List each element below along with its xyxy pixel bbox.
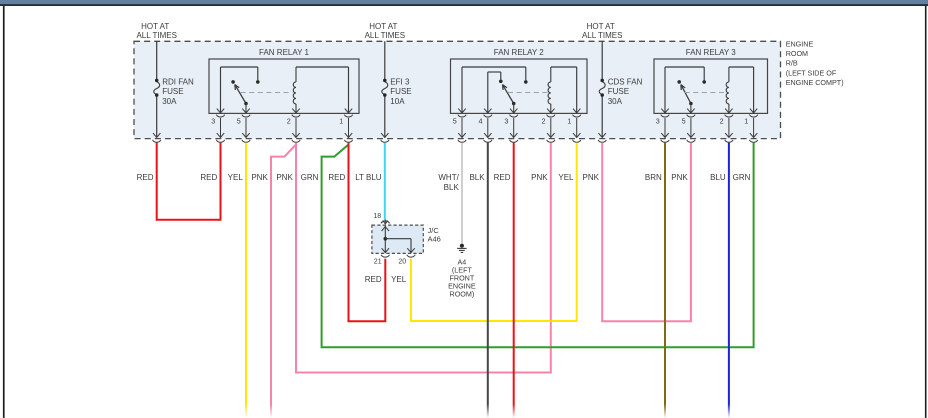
svg-text:5: 5	[453, 117, 457, 126]
svg-text:ENGINE: ENGINE	[786, 40, 814, 49]
svg-text:BRN: BRN	[645, 173, 662, 182]
svg-text:RED: RED	[137, 173, 154, 182]
svg-text:HOT AT: HOT AT	[141, 22, 169, 31]
svg-text:J/C: J/C	[428, 226, 440, 235]
svg-text:BLK: BLK	[444, 183, 460, 192]
svg-text:YEL: YEL	[558, 173, 574, 182]
svg-text:FUSE: FUSE	[162, 87, 183, 96]
svg-text:2: 2	[287, 117, 291, 126]
svg-text:RED: RED	[494, 173, 511, 182]
svg-text:HOT AT: HOT AT	[587, 22, 615, 31]
svg-text:HOT AT: HOT AT	[369, 22, 397, 31]
svg-text:CDS FAN: CDS FAN	[608, 78, 643, 87]
svg-text:GRN: GRN	[733, 173, 751, 182]
svg-text:ROOM): ROOM)	[450, 290, 475, 299]
svg-text:FUSE: FUSE	[608, 87, 629, 96]
svg-text:ALL TIMES: ALL TIMES	[365, 31, 405, 40]
svg-text:FAN RELAY 1: FAN RELAY 1	[259, 48, 310, 57]
svg-text:18: 18	[373, 213, 381, 220]
svg-text:RED: RED	[365, 275, 382, 284]
svg-text:30A: 30A	[608, 97, 623, 106]
svg-text:1: 1	[567, 117, 571, 126]
svg-text:A46: A46	[428, 235, 441, 244]
svg-text:WHT/: WHT/	[438, 173, 459, 182]
svg-text:ENGINE COMPT): ENGINE COMPT)	[786, 78, 844, 87]
svg-text:(LEFT SIDE OF: (LEFT SIDE OF	[786, 68, 837, 77]
svg-text:YEL: YEL	[228, 173, 244, 182]
svg-text:2: 2	[720, 117, 724, 126]
svg-text:FAN RELAY 2: FAN RELAY 2	[494, 48, 545, 57]
svg-text:BLU: BLU	[710, 173, 726, 182]
svg-text:GRN: GRN	[301, 173, 319, 182]
svg-text:PNK: PNK	[251, 173, 268, 182]
svg-text:21: 21	[374, 259, 382, 266]
svg-text:10A: 10A	[390, 97, 405, 106]
svg-text:5: 5	[682, 117, 686, 126]
svg-text:2: 2	[542, 117, 546, 126]
svg-text:PNK: PNK	[583, 173, 600, 182]
svg-text:30A: 30A	[162, 97, 177, 106]
svg-text:ALL TIMES: ALL TIMES	[582, 31, 622, 40]
svg-text:3: 3	[211, 117, 215, 126]
svg-text:YEL: YEL	[391, 275, 407, 284]
svg-text:20: 20	[398, 259, 406, 266]
svg-text:LT BLU: LT BLU	[355, 173, 382, 182]
svg-text:4: 4	[479, 117, 483, 126]
svg-text:PNK: PNK	[531, 173, 548, 182]
svg-text:PNK: PNK	[276, 173, 293, 182]
svg-text:FUSE: FUSE	[390, 87, 411, 96]
svg-text:EFI 3: EFI 3	[390, 78, 410, 87]
svg-text:1: 1	[339, 117, 343, 126]
svg-text:ALL TIMES: ALL TIMES	[136, 31, 176, 40]
svg-text:3: 3	[504, 117, 508, 126]
svg-text:RDI FAN: RDI FAN	[162, 78, 194, 87]
svg-text:5: 5	[237, 117, 241, 126]
svg-text:BLK: BLK	[469, 173, 485, 182]
svg-text:RED: RED	[200, 173, 217, 182]
svg-text:R/B: R/B	[786, 59, 798, 68]
svg-text:1: 1	[744, 117, 748, 126]
svg-text:FAN RELAY 3: FAN RELAY 3	[686, 48, 737, 57]
svg-text:3: 3	[656, 117, 660, 126]
svg-text:PNK: PNK	[671, 173, 688, 182]
svg-text:RED: RED	[328, 173, 345, 182]
svg-text:ROOM: ROOM	[786, 49, 808, 58]
